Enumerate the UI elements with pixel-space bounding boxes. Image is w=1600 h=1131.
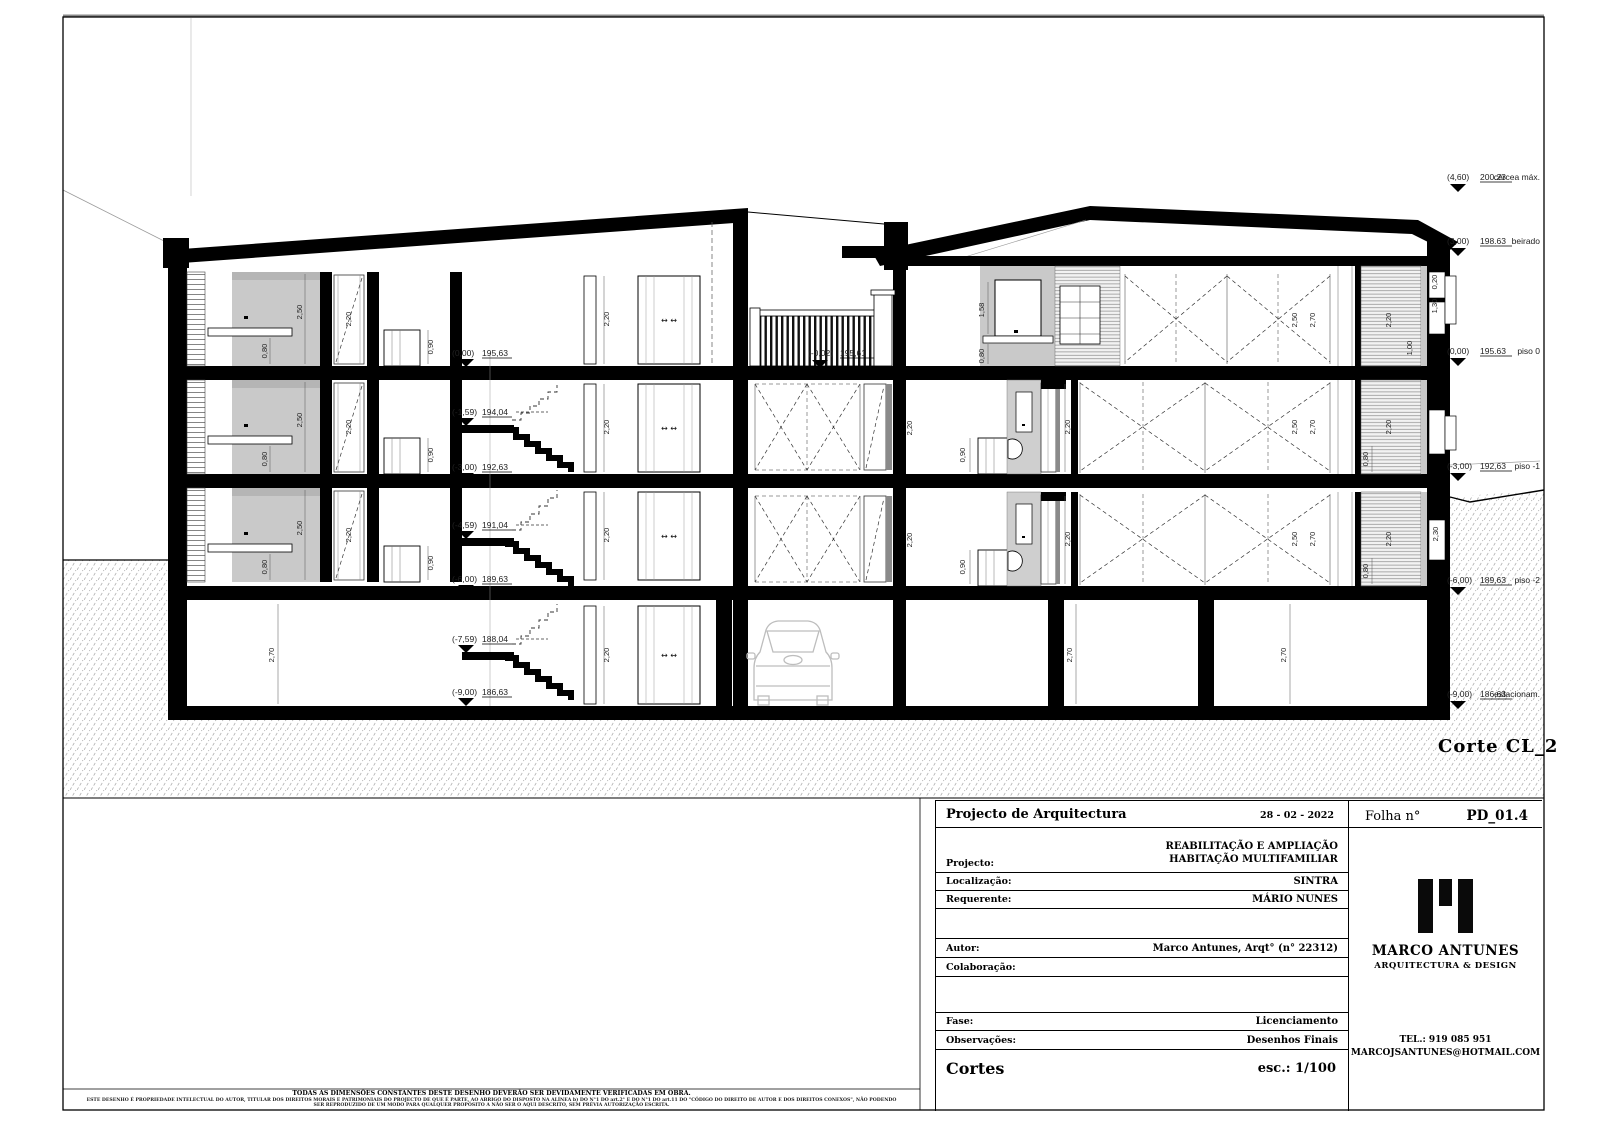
localizacao-value: SINTRA	[1293, 876, 1338, 887]
level-elevation: 192,63	[482, 462, 508, 472]
level-marker: (-3,00) 192,63 piso -1	[1447, 461, 1540, 481]
wardrobe-x-panels	[1125, 274, 1330, 364]
background-context-lines	[63, 18, 191, 243]
logo-bar	[1439, 879, 1452, 906]
autor-value: Marco Antunes, Arqt° (n° 22312)	[1153, 943, 1338, 954]
level-value: (-7,59)	[452, 634, 477, 644]
footer-line1: TODAS AS DIMENSÕES CONSTANTES DESTE DESE…	[63, 1090, 920, 1097]
level-triangle-icon	[458, 698, 474, 706]
window	[995, 280, 1041, 336]
architect-phone: TEL.: 919 085 951	[1349, 1035, 1542, 1045]
architect-logo-icon	[1349, 879, 1542, 937]
colaboracao-row: Colaboração:	[936, 958, 1348, 977]
dim-room-height: 2,50	[1290, 313, 1299, 328]
level-name: estacionam.	[1494, 689, 1540, 699]
footer-disclaimer: TODAS AS DIMENSÕES CONSTANTES DESTE DESE…	[63, 1090, 920, 1108]
door-swing-arrows-icon: ↔ ↔	[661, 651, 677, 660]
level-triangle-icon	[1450, 473, 1466, 481]
level-triangle-icon	[458, 645, 474, 653]
level-elevation: 192,63	[1480, 461, 1506, 471]
level-elevation: 189,63	[1480, 575, 1506, 585]
level-name: piso -2	[1514, 575, 1540, 585]
projecto-row: Projecto: REABILITAÇÃO E AMPLIAÇÃO HABIT…	[936, 828, 1348, 873]
stair-flight	[505, 658, 571, 700]
level-value: (-0,02)	[808, 348, 833, 358]
folha-number: PD_01.4	[1467, 808, 1529, 824]
stairs	[462, 352, 571, 706]
spacer-row	[936, 977, 1348, 1013]
garage-level: 2,20 ↔ ↔ 2,70 2,70 2,70	[267, 604, 1290, 705]
level-triangle-icon	[1450, 358, 1466, 366]
stair-flight-dashed	[512, 604, 557, 644]
drawing-scale: esc.: 1/100	[1258, 1061, 1336, 1076]
level-elevation: 189,63	[482, 574, 508, 584]
title-block-main: Projecto de Arquitectura 28 - 02 - 2022 …	[936, 801, 1348, 1111]
door	[864, 384, 886, 470]
section-title: Corte CL_2	[1438, 736, 1558, 757]
dim-louver-height: 2,20	[1384, 313, 1393, 328]
level-elevation: 195.63	[1480, 346, 1506, 356]
window-frame	[1445, 416, 1456, 450]
level-marker: (-7,59) 188,04	[452, 634, 512, 653]
requerente-label: Requerente:	[946, 894, 1011, 905]
projecto-value-line2: HABITAÇÃO MULTIFAMILIAR	[1169, 854, 1338, 865]
folha-label: Folha n°	[1365, 809, 1420, 824]
level-elevation: 195,63	[482, 348, 508, 358]
slab-piso-1	[187, 474, 1450, 488]
localizacao-label: Localização:	[946, 876, 1012, 887]
door-leaf	[584, 606, 596, 704]
logo-bar	[1458, 879, 1473, 933]
observacoes-value: Desenhos Finais	[1247, 1035, 1338, 1046]
slab-piso0	[187, 366, 1450, 380]
level-elevation: 186,63	[482, 687, 508, 697]
level-value: (0,00)	[1447, 346, 1469, 356]
stair-flight-dashed	[512, 385, 557, 420]
left-wall	[168, 250, 187, 720]
observacoes-row: Observações: Desenhos Finais	[936, 1031, 1348, 1050]
drawing-title: Cortes	[946, 1059, 1004, 1078]
level-elevation: 198.63	[1480, 236, 1506, 246]
level-marker: (-9,00) 186,63	[452, 687, 512, 706]
stair-flight	[505, 544, 571, 586]
dim-door-height: 2,20	[905, 421, 914, 436]
level-name: piso -1	[1514, 461, 1540, 471]
fase-row: Fase: Licenciamento	[936, 1013, 1348, 1031]
requerente-row: Requerente: MÁRIO NUNES	[936, 891, 1348, 909]
level-triangle-icon	[1450, 184, 1466, 192]
level-value: (0,00)	[452, 348, 474, 358]
window-frame	[1445, 276, 1456, 324]
level-name: beirado	[1512, 236, 1541, 246]
dim-garage-height: 2,70	[1065, 648, 1074, 663]
fase-label: Fase:	[946, 1016, 973, 1027]
fase-value: Licenciamento	[1256, 1016, 1338, 1027]
level-value: (-3,00)	[452, 462, 477, 472]
drawing-sheet: 2,50 0,80 2,20 0,90 2,20 ↔ ↔	[0, 0, 1600, 1131]
door	[864, 496, 886, 582]
level-value: (-1,59)	[452, 407, 477, 417]
slab-foundation	[168, 706, 1450, 720]
folha-row: Folha n° PD_01.4	[1349, 801, 1542, 828]
railing	[760, 316, 874, 366]
dim-door-height: 2,20	[905, 533, 914, 548]
level-value: (3,00)	[1447, 236, 1469, 246]
stair-flight	[505, 430, 571, 472]
dim-garage-height: 2,70	[1279, 648, 1288, 663]
dim-window-height: 1,58	[977, 303, 986, 318]
architect-tagline: ARQUITECTURA & DESIGN	[1349, 961, 1542, 971]
localizacao-row: Localização: SINTRA	[936, 873, 1348, 891]
projecto-label: Projecto:	[946, 858, 994, 869]
title-block: Projecto de Arquitectura 28 - 02 - 2022 …	[935, 800, 1542, 1111]
dim-sill-height: 0,80	[977, 349, 986, 364]
dim: 1,00	[1405, 341, 1414, 356]
title-block-side: Folha n° PD_01.4 MARCO ANTUNES ARQUITECT…	[1348, 801, 1542, 1111]
slab-piso-2	[187, 586, 1450, 600]
level-value: (-3,00)	[1447, 461, 1472, 471]
dim-floor-height: 2,70	[1308, 313, 1317, 328]
stair-flight-dashed	[512, 490, 557, 530]
wall-window	[1429, 410, 1445, 454]
dim: 1,30	[1430, 299, 1439, 314]
colaboracao-label: Colaboração:	[946, 962, 1016, 973]
dim: 0,20	[1430, 275, 1439, 290]
level-name: cércea máx.	[1494, 172, 1540, 182]
level-value: (-9,00)	[1447, 689, 1472, 699]
projecto-value: REABILITAÇÃO E AMPLIAÇÃO HABITAÇÃO MULTI…	[1166, 841, 1338, 866]
level-name: piso 0	[1517, 346, 1540, 356]
level-elevation: 194,04	[482, 407, 508, 417]
logo-bar	[1418, 879, 1433, 933]
observacoes-label: Observações:	[946, 1035, 1016, 1046]
level-marker: (3,00) 198.63 beirado	[1447, 236, 1540, 256]
right-top-floor: 1,58 0,80 2,50 2,70 2,20 0,20	[977, 266, 1456, 366]
level-value: (-6,00)	[452, 574, 477, 584]
spacer-row	[936, 909, 1348, 939]
level-marker: (4,60) 200.23 cércea máx.	[1447, 172, 1540, 192]
level-value: (-4,59)	[452, 520, 477, 530]
requerente-value: MÁRIO NUNES	[1252, 894, 1338, 905]
level-elevation: 188,04	[482, 634, 508, 644]
footer-line2: ESTE DESENHO É PROPRIEDADE INTELECTUAL D…	[82, 1098, 902, 1108]
date-value: 28 - 02 - 2022	[1260, 810, 1334, 821]
level-triangle-icon	[1450, 248, 1466, 256]
projecto-value-line1: REABILITAÇÃO E AMPLIAÇÃO	[1166, 841, 1338, 852]
architect-email: MARCOJSANTUNES@HOTMAIL.COM	[1349, 1048, 1542, 1058]
level-elevation: 191,04	[482, 520, 508, 530]
level-elevation: 195,61	[840, 348, 866, 358]
middle-bay: 2,20 2,20 (-0,02) 195,61	[750, 290, 914, 582]
autor-label: Autor:	[946, 943, 980, 954]
dim-door-height: 2,20	[602, 648, 611, 663]
title-block-header-row: Projecto de Arquitectura 28 - 02 - 2022	[936, 801, 1348, 828]
dim-garage-height: 2,70	[267, 648, 276, 663]
level-value: (-6,00)	[1447, 575, 1472, 585]
dim: 2,30	[1431, 527, 1440, 542]
project-type-label: Projecto de Arquitectura	[946, 807, 1127, 822]
level-marker: (0,00) 195.63 piso 0	[1447, 346, 1540, 366]
architect-name: MARCO ANTUNES	[1349, 943, 1542, 959]
level-value: (4,60)	[1447, 172, 1469, 182]
car-outline	[747, 621, 839, 705]
level-value: (-9,00)	[452, 687, 477, 697]
autor-row: Autor: Marco Antunes, Arqt° (n° 22312)	[936, 939, 1348, 958]
left-roof	[168, 208, 748, 264]
